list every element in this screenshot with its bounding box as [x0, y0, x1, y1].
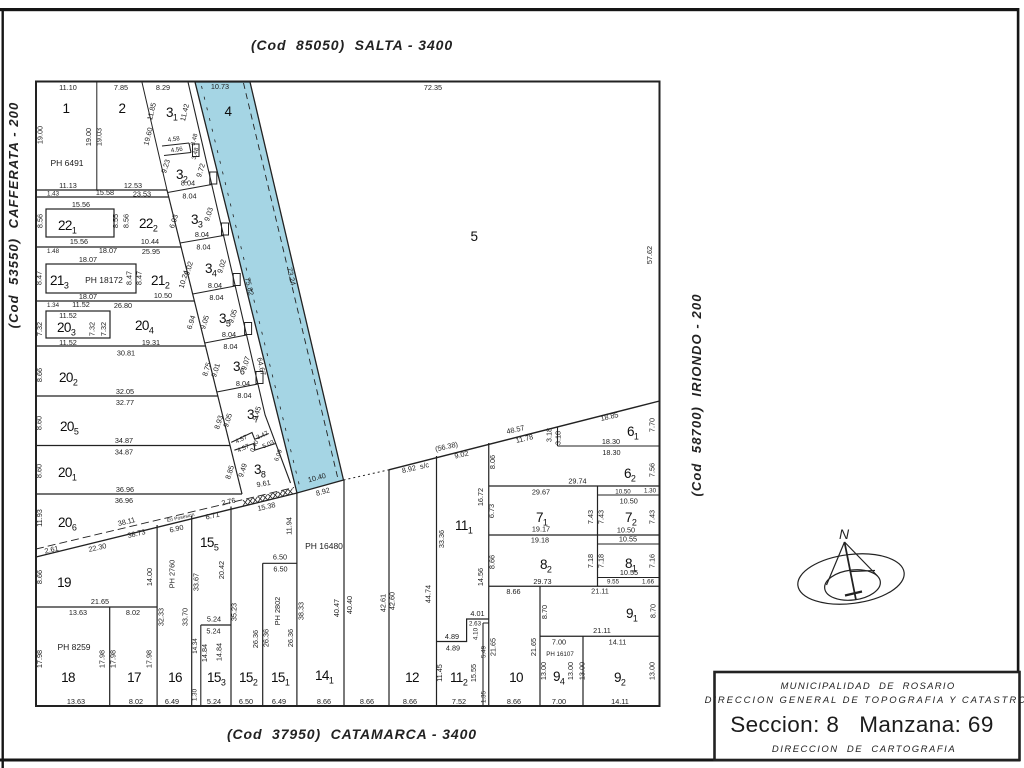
svg-text:PH 16480: PH 16480 — [305, 541, 343, 551]
svg-text:8.02: 8.02 — [126, 608, 140, 617]
svg-text:11.52: 11.52 — [59, 311, 77, 320]
svg-text:3.18: 3.18 — [545, 428, 554, 442]
svg-text:8.60: 8.60 — [35, 416, 44, 430]
svg-text:16.72: 16.72 — [476, 488, 485, 506]
svg-text:19.03: 19.03 — [95, 128, 104, 146]
svg-text:1.43: 1.43 — [47, 191, 60, 198]
svg-text:7.70: 7.70 — [648, 418, 657, 432]
svg-text:40.40: 40.40 — [345, 596, 354, 614]
svg-text:29.74: 29.74 — [568, 477, 586, 486]
svg-text:PH 16107: PH 16107 — [546, 651, 574, 658]
svg-text:32.33: 32.33 — [157, 608, 166, 626]
svg-text:7.56: 7.56 — [648, 463, 657, 477]
svg-text:1: 1 — [63, 101, 70, 116]
svg-text:18.30: 18.30 — [602, 448, 620, 457]
svg-text:11.94: 11.94 — [285, 517, 294, 535]
svg-text:15.58: 15.58 — [96, 188, 114, 197]
svg-text:8.04: 8.04 — [196, 243, 210, 252]
svg-text:8.04: 8.04 — [237, 391, 251, 400]
svg-text:20.42: 20.42 — [217, 561, 226, 579]
svg-text:23.53: 23.53 — [133, 190, 151, 199]
svg-text:11.93: 11.93 — [35, 509, 44, 527]
svg-text:8.04: 8.04 — [223, 342, 237, 351]
svg-text:8.70: 8.70 — [540, 605, 549, 619]
svg-text:17.98: 17.98 — [145, 650, 154, 668]
svg-text:11.10: 11.10 — [59, 83, 77, 92]
svg-text:19.00: 19.00 — [36, 126, 45, 144]
svg-text:(Cod 37950) CATAMARCA - 3400: (Cod 37950) CATAMARCA - 3400 — [227, 726, 477, 742]
svg-text:8.47: 8.47 — [125, 271, 134, 285]
svg-text:7.52: 7.52 — [452, 697, 466, 706]
svg-text:32.77: 32.77 — [116, 398, 134, 407]
svg-text:25.95: 25.95 — [142, 247, 160, 256]
svg-text:4.89: 4.89 — [445, 632, 459, 641]
svg-text:33.67: 33.67 — [192, 573, 201, 591]
svg-text:42.60: 42.60 — [388, 592, 397, 610]
svg-text:36.96: 36.96 — [115, 496, 133, 505]
svg-text:10.50: 10.50 — [154, 291, 172, 300]
svg-text:13.00: 13.00 — [539, 662, 548, 680]
svg-text:7.85: 7.85 — [114, 83, 128, 92]
svg-text:14.34: 14.34 — [192, 638, 199, 654]
svg-text:13.00: 13.00 — [578, 662, 587, 680]
svg-text:18.07: 18.07 — [99, 246, 117, 255]
svg-text:7.32: 7.32 — [99, 322, 108, 336]
svg-text:35.23: 35.23 — [230, 603, 239, 621]
svg-text:10.50: 10.50 — [620, 497, 638, 506]
svg-text:32.05: 32.05 — [116, 387, 134, 396]
svg-text:8.66: 8.66 — [35, 570, 44, 584]
svg-text:34.87: 34.87 — [115, 448, 133, 457]
svg-text:5.24: 5.24 — [207, 697, 221, 706]
svg-text:17: 17 — [127, 670, 141, 685]
svg-text:14.00: 14.00 — [145, 568, 154, 586]
svg-text:13.00: 13.00 — [648, 662, 657, 680]
svg-text:8.66: 8.66 — [488, 555, 497, 569]
svg-text:7.43: 7.43 — [586, 510, 595, 524]
svg-text:6.49: 6.49 — [272, 697, 286, 706]
svg-text:30.81: 30.81 — [117, 349, 135, 358]
svg-text:8.04: 8.04 — [236, 379, 250, 388]
svg-text:5.24: 5.24 — [206, 627, 220, 636]
svg-text:7.43: 7.43 — [597, 510, 606, 524]
svg-text:5.49: 5.49 — [481, 645, 488, 658]
svg-text:10.50: 10.50 — [615, 489, 631, 496]
svg-text:N: N — [839, 526, 850, 542]
svg-text:18.07: 18.07 — [79, 255, 97, 264]
svg-text:8.66: 8.66 — [360, 697, 374, 706]
svg-text:(Cod 53550) CAFFERATA - 200: (Cod 53550) CAFFERATA - 200 — [6, 102, 21, 329]
svg-text:33.36: 33.36 — [437, 530, 446, 548]
svg-text:8.55: 8.55 — [111, 214, 120, 228]
svg-text:19.17: 19.17 — [532, 525, 550, 534]
svg-text:29.67: 29.67 — [532, 488, 550, 497]
svg-text:19.00: 19.00 — [84, 128, 93, 146]
svg-text:26.36: 26.36 — [251, 630, 260, 648]
svg-text:5.24: 5.24 — [207, 615, 221, 624]
svg-text:1.30: 1.30 — [192, 688, 199, 701]
svg-text:PH 8259: PH 8259 — [57, 642, 90, 652]
svg-text:8.47: 8.47 — [35, 271, 44, 285]
svg-text:17.98: 17.98 — [109, 650, 118, 668]
svg-text:38.33: 38.33 — [297, 602, 306, 620]
svg-text:14.11: 14.11 — [611, 697, 629, 706]
svg-text:36.96: 36.96 — [116, 485, 134, 494]
svg-text:6.50: 6.50 — [273, 565, 287, 574]
svg-text:72.35: 72.35 — [424, 83, 442, 92]
svg-text:3.18: 3.18 — [554, 431, 563, 445]
svg-text:11.13: 11.13 — [59, 181, 77, 190]
svg-text:7.32: 7.32 — [35, 322, 44, 336]
svg-text:4.01: 4.01 — [470, 609, 484, 618]
svg-text:19: 19 — [57, 575, 71, 590]
svg-text:4.89: 4.89 — [446, 644, 460, 653]
svg-text:(Cod 85050) SALTA - 3400: (Cod 85050) SALTA - 3400 — [251, 37, 453, 53]
svg-text:8.66: 8.66 — [403, 697, 417, 706]
svg-text:18: 18 — [61, 670, 75, 685]
svg-text:PH 6491: PH 6491 — [50, 158, 83, 168]
svg-text:40.47: 40.47 — [332, 599, 341, 617]
svg-text:8.56: 8.56 — [36, 214, 45, 228]
svg-text:21.65: 21.65 — [529, 638, 538, 656]
svg-text:8.04: 8.04 — [181, 179, 195, 188]
svg-text:8.70: 8.70 — [649, 604, 658, 618]
svg-text:14.56: 14.56 — [476, 568, 485, 586]
svg-text:2: 2 — [119, 101, 126, 116]
svg-text:11.52: 11.52 — [72, 300, 90, 309]
svg-text:1.66: 1.66 — [642, 579, 655, 586]
svg-text:8.02: 8.02 — [129, 697, 143, 706]
svg-text:2.63: 2.63 — [469, 621, 482, 628]
svg-text:1.34: 1.34 — [47, 302, 60, 309]
svg-text:8.66: 8.66 — [35, 368, 44, 382]
svg-text:8.04: 8.04 — [209, 293, 223, 302]
svg-text:10.55: 10.55 — [619, 535, 637, 544]
svg-text:15.55: 15.55 — [469, 664, 478, 682]
svg-text:8.66: 8.66 — [317, 697, 331, 706]
svg-text:8.47: 8.47 — [135, 271, 144, 285]
svg-text:26.36: 26.36 — [262, 629, 271, 647]
svg-text:7.16: 7.16 — [648, 554, 657, 568]
svg-text:(Cod 58700) IRIONDO - 200: (Cod 58700) IRIONDO - 200 — [689, 293, 704, 496]
svg-text:17.98: 17.98 — [98, 650, 107, 668]
svg-text:21.65: 21.65 — [489, 638, 498, 656]
svg-text:8.04: 8.04 — [182, 192, 196, 201]
svg-text:42.61: 42.61 — [379, 594, 388, 612]
svg-text:MUNICIPALIDAD DE ROSARIO: MUNICIPALIDAD DE ROSARIO — [780, 681, 955, 692]
svg-text:5: 5 — [471, 229, 478, 244]
svg-text:1.35: 1.35 — [481, 690, 488, 703]
svg-text:15.56: 15.56 — [72, 200, 90, 209]
svg-text:8.60: 8.60 — [35, 464, 44, 478]
svg-text:26.36: 26.36 — [286, 629, 295, 647]
svg-text:33.70: 33.70 — [181, 608, 190, 626]
svg-text:6.73: 6.73 — [487, 504, 496, 518]
svg-text:7.18: 7.18 — [586, 554, 595, 568]
svg-text:8.56: 8.56 — [122, 214, 131, 228]
svg-text:7.00: 7.00 — [552, 638, 566, 647]
svg-text:4: 4 — [225, 104, 233, 119]
svg-text:29.73: 29.73 — [533, 577, 551, 586]
svg-text:6.50: 6.50 — [273, 553, 287, 562]
svg-text:1.30: 1.30 — [644, 488, 657, 495]
svg-text:10.44: 10.44 — [141, 237, 159, 246]
svg-text:12: 12 — [405, 670, 419, 685]
svg-text:4.10: 4.10 — [473, 627, 480, 640]
svg-text:PH 18172: PH 18172 — [85, 275, 123, 285]
svg-text:DIRECCION GENERAL DE TOPOGRAFI: DIRECCION GENERAL DE TOPOGRAFIA Y CATAST… — [705, 695, 1024, 706]
svg-text:57.62: 57.62 — [645, 246, 654, 264]
svg-text:6.50: 6.50 — [239, 697, 253, 706]
svg-text:14.84: 14.84 — [215, 643, 224, 661]
svg-text:13.63: 13.63 — [69, 608, 87, 617]
svg-text:14.84: 14.84 — [200, 644, 209, 662]
svg-text:9.55: 9.55 — [607, 579, 620, 586]
svg-text:8.04: 8.04 — [208, 281, 222, 290]
svg-text:8.66: 8.66 — [506, 587, 520, 596]
svg-text:19.18: 19.18 — [531, 536, 549, 545]
svg-text:16: 16 — [168, 670, 182, 685]
svg-text:26.80: 26.80 — [114, 301, 132, 310]
svg-text:21.11: 21.11 — [593, 626, 611, 635]
svg-text:7.32: 7.32 — [88, 322, 97, 336]
svg-text:15.56: 15.56 — [70, 237, 88, 246]
svg-text:10: 10 — [509, 670, 523, 685]
svg-text:6.49: 6.49 — [165, 697, 179, 706]
svg-text:8.04: 8.04 — [195, 230, 209, 239]
svg-text:8.29: 8.29 — [156, 83, 170, 92]
svg-text:PH 2802: PH 2802 — [273, 597, 282, 625]
svg-text:PH 2760: PH 2760 — [168, 560, 177, 588]
svg-text:21.65: 21.65 — [91, 597, 109, 606]
svg-text:13.00: 13.00 — [566, 662, 575, 680]
svg-text:21.11: 21.11 — [591, 587, 609, 596]
svg-text:8.66: 8.66 — [507, 697, 521, 706]
svg-text:8.04: 8.04 — [222, 330, 236, 339]
svg-text:10.55: 10.55 — [620, 568, 638, 577]
svg-text:13.63: 13.63 — [67, 697, 85, 706]
svg-text:DIRECCION DE CARTOGRAFIA: DIRECCION DE CARTOGRAFIA — [772, 744, 956, 755]
svg-text:14.11: 14.11 — [609, 638, 627, 647]
svg-text:Seccion: 8 Manzana: 69: Seccion: 8 Manzana: 69 — [730, 712, 994, 737]
svg-text:44.74: 44.74 — [424, 585, 433, 603]
svg-text:7.43: 7.43 — [648, 510, 657, 524]
svg-text:17.98: 17.98 — [35, 650, 44, 668]
svg-text:7.00: 7.00 — [552, 697, 566, 706]
svg-text:10.73: 10.73 — [211, 82, 229, 91]
svg-text:8.06: 8.06 — [488, 455, 497, 469]
svg-text:18.30: 18.30 — [602, 437, 620, 446]
svg-text:34.87: 34.87 — [115, 436, 133, 445]
svg-text:11.45: 11.45 — [435, 664, 444, 682]
svg-text:1.48: 1.48 — [47, 248, 60, 255]
